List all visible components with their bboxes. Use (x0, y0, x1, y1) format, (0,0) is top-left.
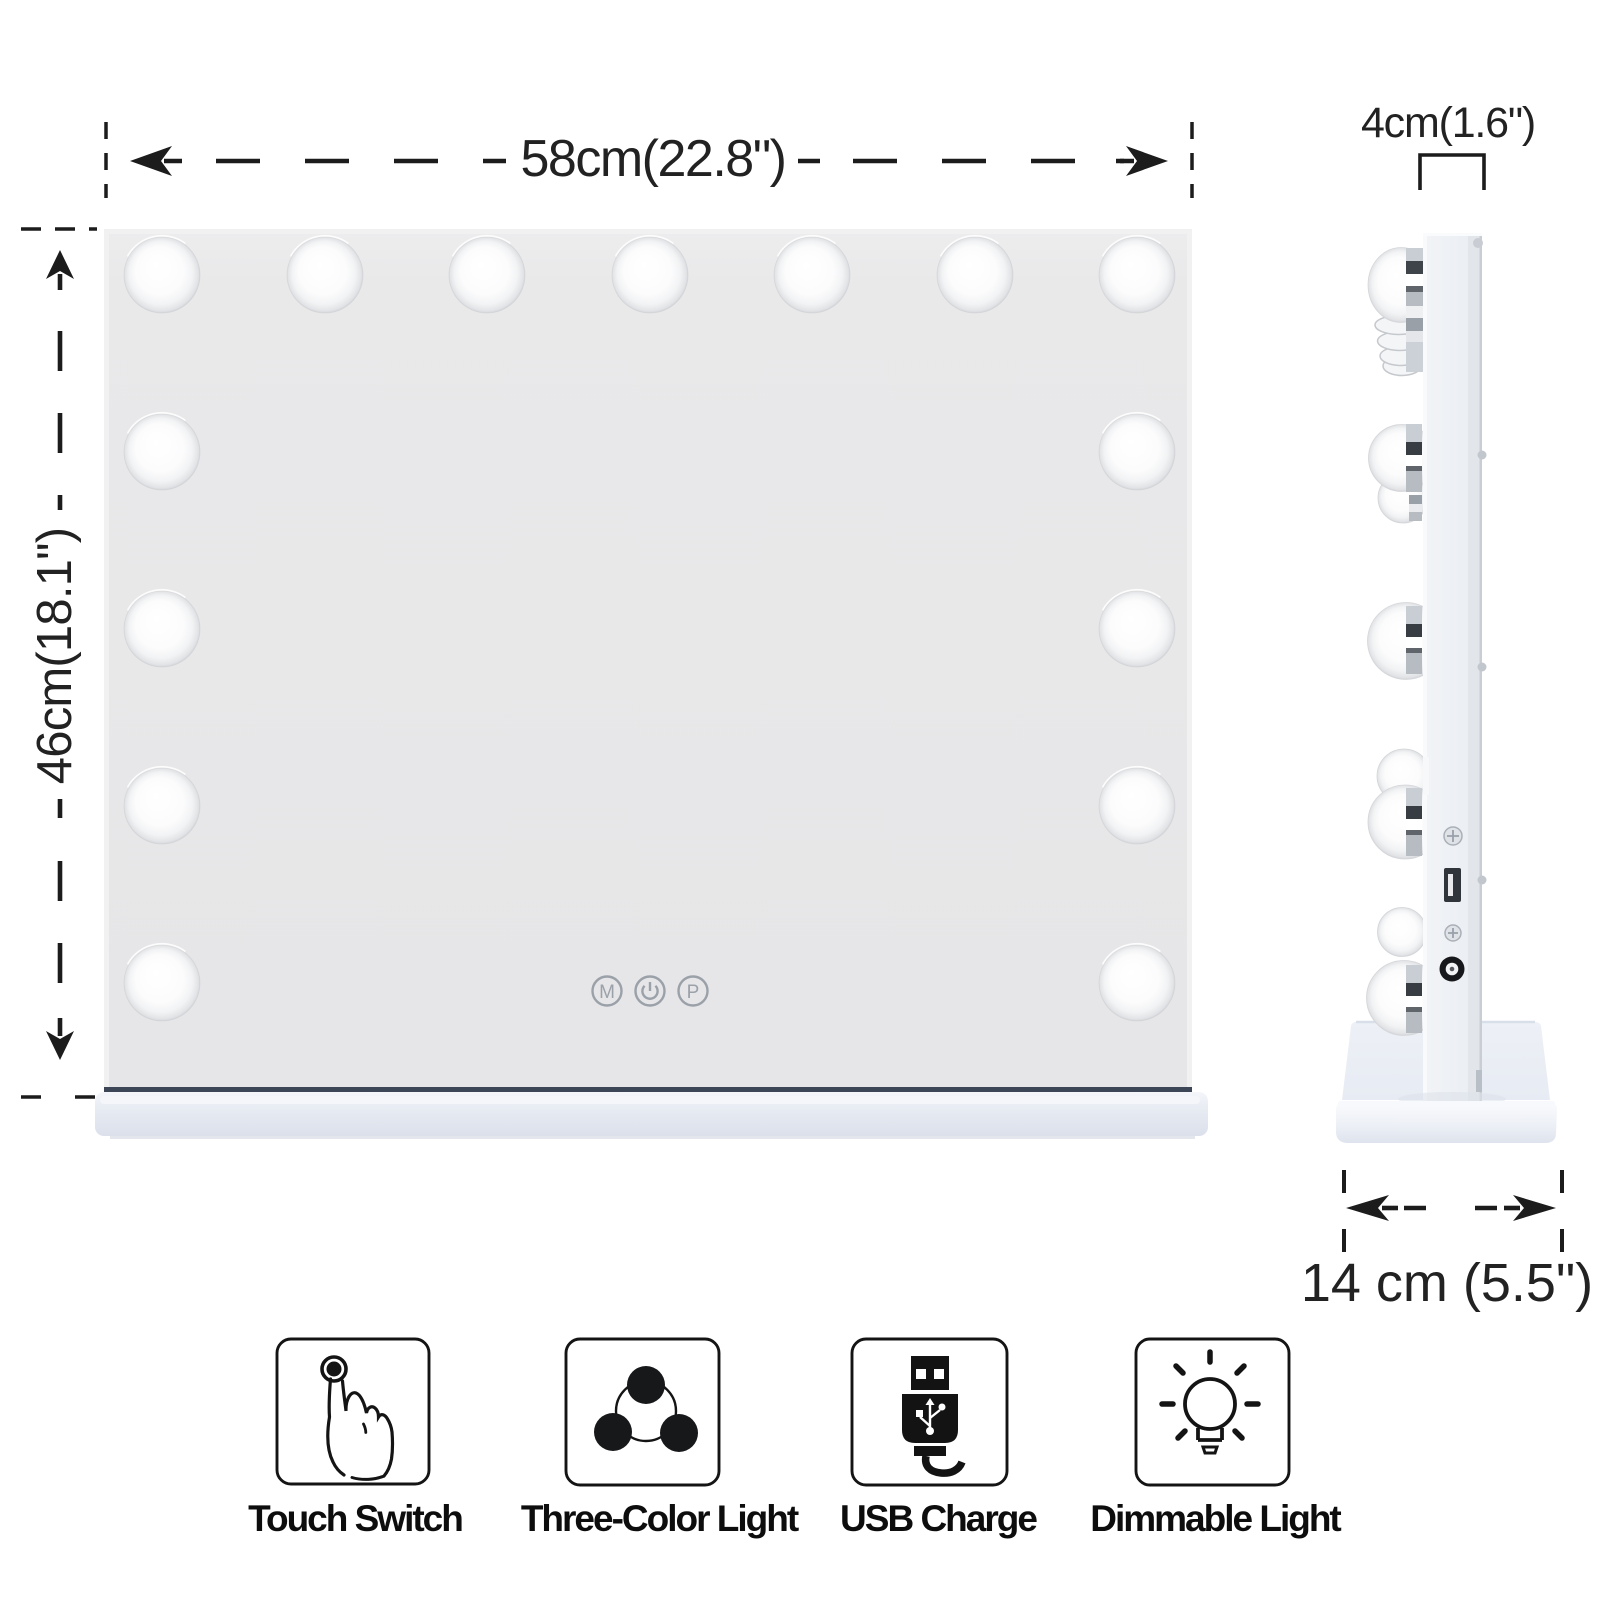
svg-text:14 cm (5.5"): 14 cm (5.5") (1301, 1253, 1593, 1313)
svg-text:USB Charge: USB Charge (840, 1498, 1037, 1539)
svg-text:46cm(18.1"): 46cm(18.1") (28, 528, 82, 784)
svg-text:Dimmable Light: Dimmable Light (1090, 1498, 1341, 1539)
svg-text:P: P (687, 982, 700, 1003)
svg-text:4cm(1.6"): 4cm(1.6") (1361, 99, 1535, 147)
svg-text:58cm(22.8"): 58cm(22.8") (521, 130, 786, 188)
svg-text:M: M (599, 982, 615, 1003)
svg-text:Touch Switch: Touch Switch (248, 1498, 462, 1539)
svg-text:Three-Color Light: Three-Color Light (521, 1498, 799, 1539)
